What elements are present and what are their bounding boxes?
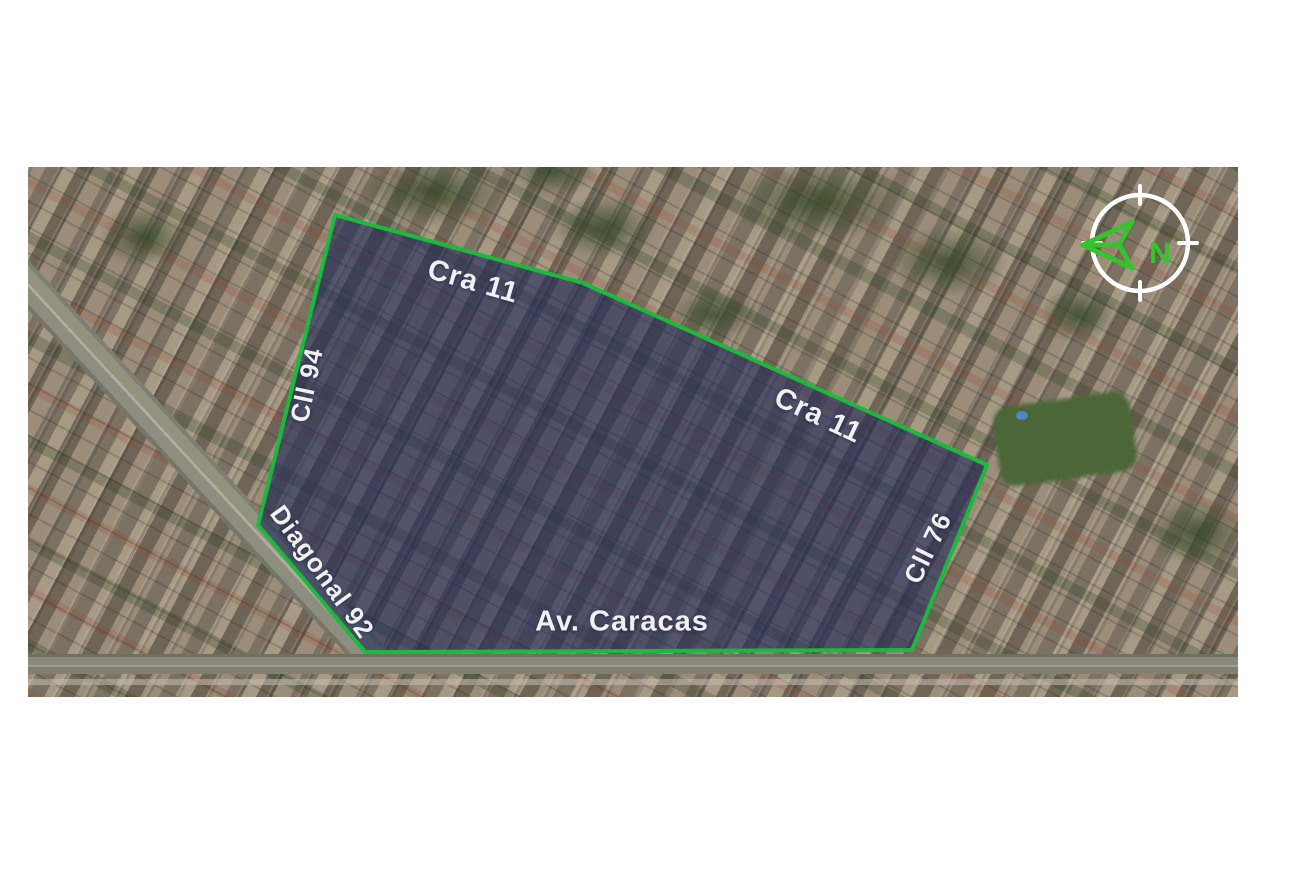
north-label: N [1149,237,1171,270]
satellite-map: Cra 11 Cll 94 Cra 11 Diagonal 92 Av. Car… [28,167,1238,697]
north-arrow-icon [1083,222,1132,268]
highlighted-zone-polygon [258,215,987,652]
street-label-av-caracas: Av. Caracas [535,606,709,639]
compass-rose: N [1080,183,1200,303]
page: Cra 11 Cll 94 Cra 11 Diagonal 92 Av. Car… [0,0,1300,870]
